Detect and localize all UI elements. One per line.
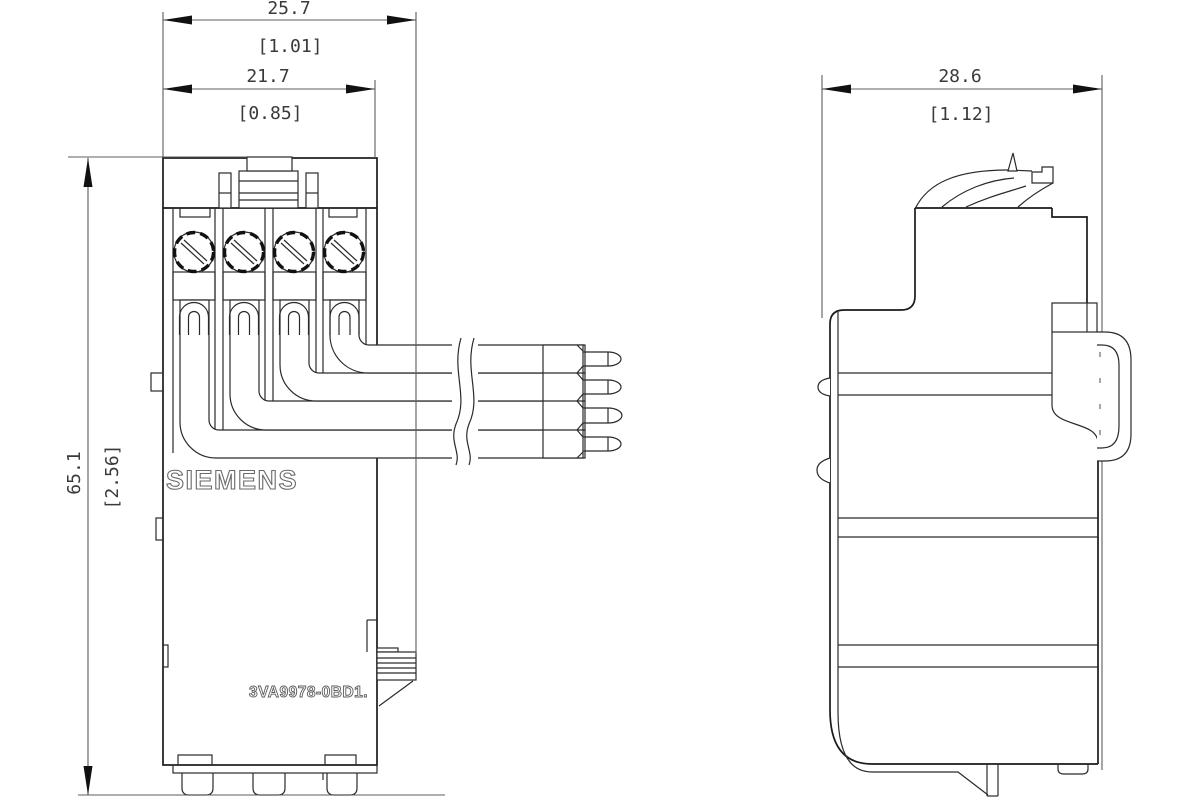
terminal-screw-1: [174, 232, 214, 272]
part-number-label: 3VA9978-0BD1.: [249, 684, 368, 701]
dimension-width-body: 21.7 [0.85]: [237, 66, 302, 124]
side-body-outline: [830, 208, 1098, 764]
terminal-screw-3: [274, 232, 314, 272]
dim-width-body-mm: 21.7: [246, 66, 289, 87]
dimension-depth: 28.6 [1.12]: [928, 66, 993, 125]
connector-pin-2: [583, 380, 621, 394]
dim-width-overall-inch: [1.01]: [257, 36, 322, 57]
terminal-screw-4: [324, 232, 364, 272]
dimension-width-overall: 25.7 [1.01]: [257, 0, 322, 57]
connector-pins: [583, 352, 622, 451]
side-body-details: [817, 303, 1098, 796]
foot-1: [182, 773, 213, 795]
latch-bump-1: [818, 378, 830, 396]
side-foot: [1058, 764, 1088, 774]
dim-height-inch: [2.56]: [102, 444, 123, 509]
dim-width-overall-mm: 25.7: [267, 0, 310, 19]
bundle-tab: [1032, 167, 1053, 183]
latch-bump-2: [817, 458, 830, 483]
wires: [180, 300, 585, 458]
technical-drawing: SIEMENS 3VA9978-0BD1.: [0, 0, 1200, 800]
dim-width-body-inch: [0.85]: [237, 103, 302, 124]
connector-pin-1: [583, 352, 621, 366]
foot-3: [327, 773, 357, 795]
side-snap-clip: [1097, 332, 1131, 461]
foot-2: [253, 773, 285, 795]
dim-depth-inch: [1.12]: [928, 104, 993, 125]
connector-pin-4: [583, 437, 621, 451]
wire-connector-block: [543, 345, 583, 458]
dim-depth-mm: 28.6: [938, 66, 981, 87]
wire-break-symbol: [452, 336, 478, 468]
brand-label: SIEMENS: [166, 465, 298, 495]
front-view: SIEMENS 3VA9978-0BD1.: [151, 157, 622, 795]
side-view: [817, 153, 1098, 796]
dim-height-mm: 65.1: [64, 451, 85, 494]
dimension-height: 65.1 [2.56]: [64, 444, 123, 509]
connector-pin-3: [583, 408, 622, 423]
drawing-canvas: SIEMENS 3VA9978-0BD1.: [0, 0, 1200, 800]
bundle-spike: [1008, 153, 1017, 171]
side-wire-bundle: [915, 153, 1053, 209]
terminal-screw-2: [224, 232, 264, 272]
